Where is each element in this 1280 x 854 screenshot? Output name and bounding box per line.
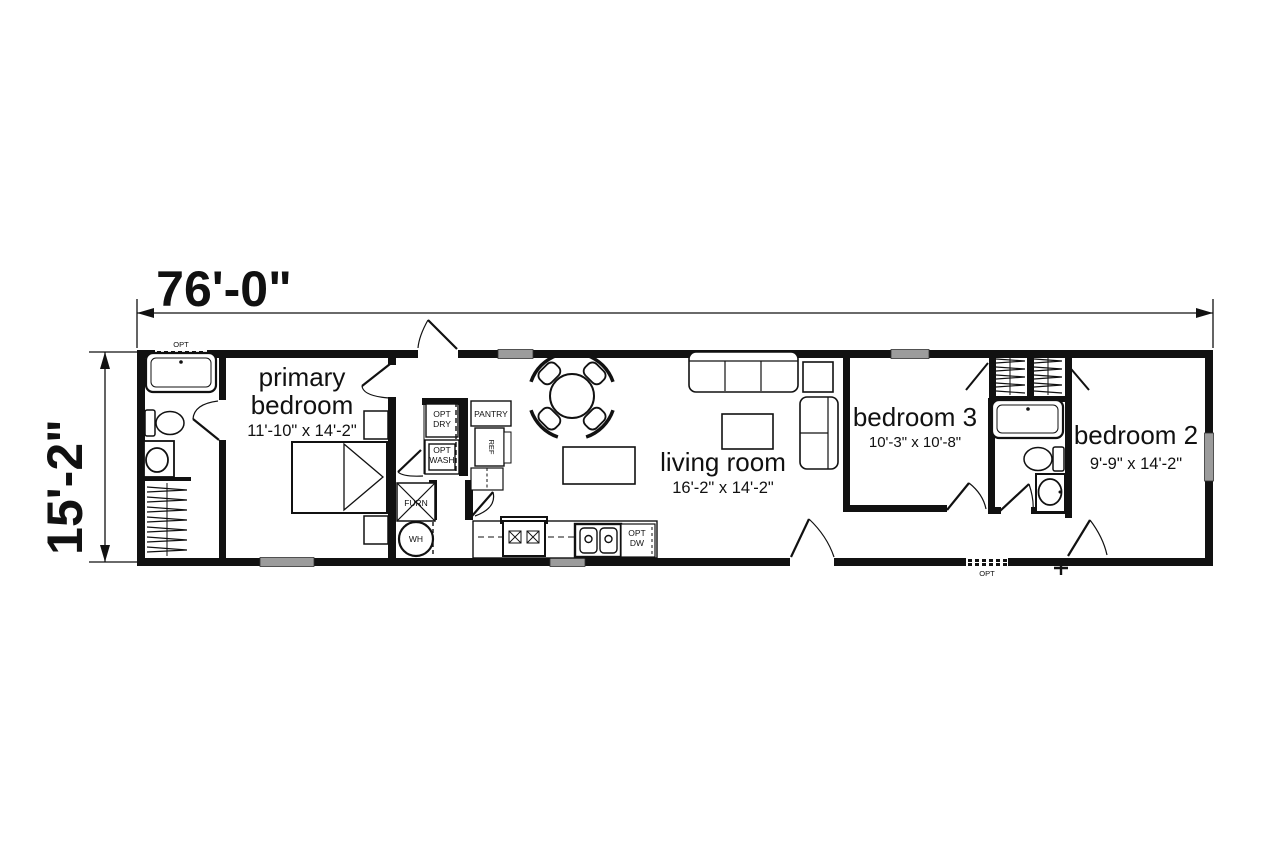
- bedroom-2-door: [1068, 520, 1107, 556]
- opt-dw-label1: OPT: [628, 528, 645, 538]
- sink-vanity: [144, 441, 174, 477]
- primary-bedroom-name-line1: primary: [259, 362, 346, 392]
- refrigerator-label: REF: [487, 440, 496, 455]
- end-table: [803, 362, 833, 392]
- range: [501, 517, 547, 556]
- floor-plan-drawing: 76'-0" 15'-2" OPT: [0, 0, 1280, 854]
- water-heater: WH: [399, 522, 433, 556]
- pantry-label: PANTRY: [474, 409, 508, 419]
- bedroom-3-size: 10'-3" x 10'-8": [869, 434, 961, 451]
- arrow-up-icon: [100, 352, 110, 369]
- sofa: [689, 352, 798, 392]
- primary-bedroom-size: 11'-10" x 14'-2": [247, 422, 357, 440]
- pantry: PANTRY: [471, 401, 511, 426]
- primary-bedroom: primary bedroom 11'-10" x 14'-2": [247, 362, 388, 544]
- sink-vanity: [1036, 474, 1065, 512]
- hall-door: [398, 450, 423, 476]
- overall-width-label: 76'-0": [156, 261, 292, 317]
- toilet: [1024, 447, 1064, 471]
- window: [891, 350, 929, 359]
- living-room-size: 16'-2" x 14'-2": [672, 479, 774, 497]
- window: [498, 350, 533, 359]
- back-door-opening: [418, 349, 458, 359]
- closet-hangers: [996, 357, 1025, 395]
- bathtub: [146, 353, 216, 392]
- kitchen-island: [563, 447, 635, 484]
- opt-label: OPT: [979, 569, 995, 578]
- primary-bath-door: [193, 401, 219, 440]
- bedroom-2: bedroom 2 9'-9" x 14'-2": [1074, 420, 1198, 473]
- kitchen-hall-door: [472, 492, 494, 516]
- opt-dw-label2: DW: [630, 538, 644, 548]
- window: [550, 558, 585, 567]
- furnace: FURN: [397, 483, 435, 521]
- opt-label: OPT: [173, 340, 189, 349]
- bedroom-3-name: bedroom 3: [853, 402, 977, 432]
- optional-dryer: OPT DRY: [426, 404, 458, 437]
- bathtub: [992, 400, 1063, 438]
- coffee-table: [722, 414, 773, 449]
- opt-dry-label1: OPT: [433, 409, 450, 419]
- utility-closet: FURN WH: [397, 483, 435, 556]
- toilet: [145, 410, 184, 436]
- closet-hangers: [147, 483, 187, 556]
- primary-bathroom: [144, 353, 216, 556]
- refrigerator: REF: [475, 428, 511, 466]
- opt-dry-label2: DRY: [433, 419, 451, 429]
- arrow-right-icon: [1196, 308, 1213, 318]
- dining-table: [528, 352, 616, 440]
- arrow-left-icon: [137, 308, 154, 318]
- front-door: [791, 519, 834, 557]
- opt-wash-label2: WASH: [429, 455, 454, 465]
- furnace-label: FURN: [404, 498, 428, 508]
- width-dimension: 76'-0": [137, 261, 1213, 348]
- depth-dimension: 15'-2": [37, 352, 137, 562]
- bedroom-3-door: [947, 483, 986, 510]
- bedroom-2-size: 9'-9" x 14'-2": [1090, 455, 1182, 473]
- floor-plan-page: 76'-0" 15'-2" OPT: [0, 0, 1280, 854]
- bedroom-3: bedroom 3 10'-3" x 10'-8": [853, 402, 977, 451]
- loveseat: [800, 397, 838, 469]
- bathroom-2-door: [1000, 484, 1033, 511]
- front-door-opening: [790, 557, 834, 567]
- closet-door-left: [966, 363, 988, 390]
- base-cabinet: [471, 468, 503, 490]
- water-heater-label: WH: [409, 534, 423, 544]
- living-room: living room 16'-2" x 14'-2": [660, 352, 838, 497]
- primary-bedroom-name-line2: bedroom: [251, 390, 354, 420]
- optional-washer: OPT WASH: [425, 440, 459, 474]
- nightstand: [364, 516, 388, 544]
- overall-depth-label: 15'-2": [37, 419, 93, 555]
- back-door: [418, 320, 457, 349]
- dining-area: [528, 352, 635, 484]
- opt-window-opening-bottom: [966, 557, 1008, 567]
- kitchen-sink: [575, 524, 621, 557]
- window: [260, 558, 314, 567]
- arrow-down-icon: [100, 545, 110, 562]
- bed: [292, 442, 387, 513]
- nightstand: [364, 411, 388, 439]
- window: [1205, 433, 1214, 481]
- bedroom-2-name: bedroom 2: [1074, 420, 1198, 450]
- bathroom-2: [992, 400, 1065, 512]
- primary-bedroom-door: [362, 364, 390, 398]
- optional-dishwasher: OPT DW: [621, 524, 655, 557]
- closet-hangers: [1034, 357, 1062, 395]
- laundry-nook: OPT DRY OPT WASH: [424, 400, 459, 474]
- opt-wash-label1: OPT: [433, 445, 450, 455]
- living-room-name: living room: [660, 447, 786, 477]
